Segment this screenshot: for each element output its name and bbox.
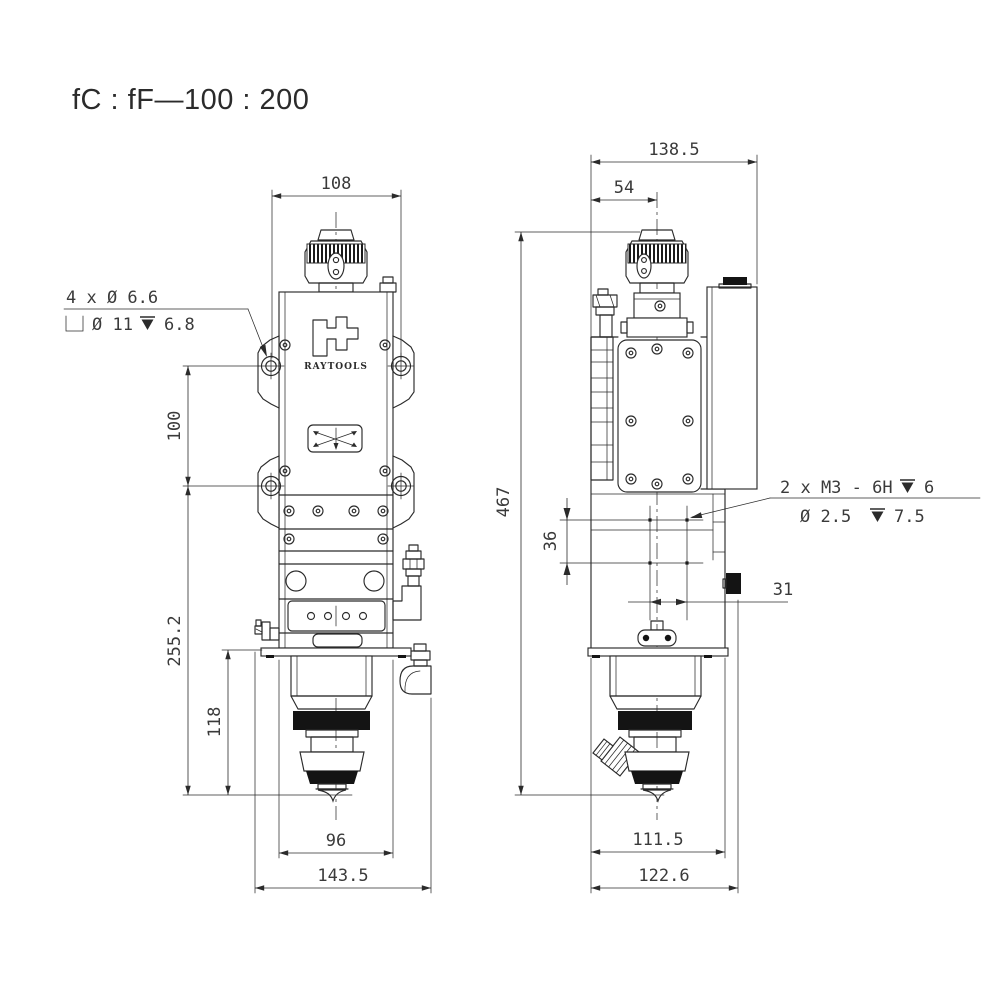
dim-front-lower-height: 118 — [205, 707, 225, 738]
side-connector-box — [707, 277, 757, 489]
side-focus-knob — [626, 230, 688, 293]
side-left-fitting — [593, 289, 617, 337]
engineering-drawing: RAYTOOLS — [0, 0, 1000, 1000]
front-right-fittings — [393, 545, 431, 694]
note-pilot-dia: Ø 2.5 — [800, 507, 851, 527]
dim-side-lens-offset: 54 — [614, 178, 634, 198]
note-thread-spec: 2 x M3 - 6H — [780, 478, 893, 498]
note-pilot-depth: 7.5 — [894, 507, 925, 527]
connector-plug — [723, 277, 747, 285]
side-view — [588, 192, 757, 820]
dim-side-overall-depth: 138.5 — [648, 140, 699, 160]
side-nozzle-assembly — [588, 648, 728, 801]
dim-front-mount-to-tip: 255.2 — [165, 615, 185, 666]
dim-side-hole-spacing-h: 31 — [773, 580, 793, 600]
note-thread-depth: 6 — [924, 478, 934, 498]
side-upper-section — [621, 293, 693, 337]
dim-front-overall-width: 143.5 — [317, 866, 368, 886]
dim-front-hole-spacing: 100 — [165, 411, 185, 442]
front-view: RAYTOOLS — [255, 212, 431, 820]
nozzle-ring — [306, 771, 358, 784]
counterbore-symbol-icon — [66, 316, 83, 331]
dim-side-overall-depth-bottom: 122.6 — [638, 866, 689, 886]
front-nozzle-assembly — [261, 648, 411, 801]
side-button — [726, 573, 741, 594]
nozzle-tip — [643, 790, 671, 801]
counterbore-note: 4 x Ø 6.6 Ø 11 6.8 — [64, 288, 267, 357]
drawing-sheet: fC : fF—100 : 200 — [0, 0, 1000, 1000]
ceramic-ring — [618, 711, 692, 730]
dim-front-top-width: 108 — [321, 174, 352, 194]
dim-side-overall-height: 467 — [494, 487, 514, 518]
dim-front-body-width: 96 — [326, 831, 346, 851]
depth-symbol-icon — [140, 317, 155, 330]
depth-symbol-icon — [870, 509, 885, 522]
nozzle-tip — [318, 790, 346, 801]
dim-side-body-depth: 111.5 — [632, 830, 683, 850]
front-left-fitting — [255, 620, 279, 640]
note-hole-count: 4 x Ø 6.6 — [66, 288, 158, 308]
front-top-connector — [380, 277, 396, 292]
brand-name: RAYTOOLS — [304, 362, 368, 372]
note-bore-depth: 6.8 — [164, 315, 195, 335]
dim-side-hole-spacing-v: 36 — [541, 531, 561, 551]
note-bore-dia: Ø 11 — [92, 315, 133, 335]
side-rail — [591, 337, 613, 480]
side-dimensions: 138.5 54 467 36 31 111.5 122.6 — [494, 140, 980, 893]
nozzle-ring — [631, 771, 683, 784]
depth-symbol-icon — [900, 480, 915, 493]
ceramic-ring — [293, 711, 370, 730]
